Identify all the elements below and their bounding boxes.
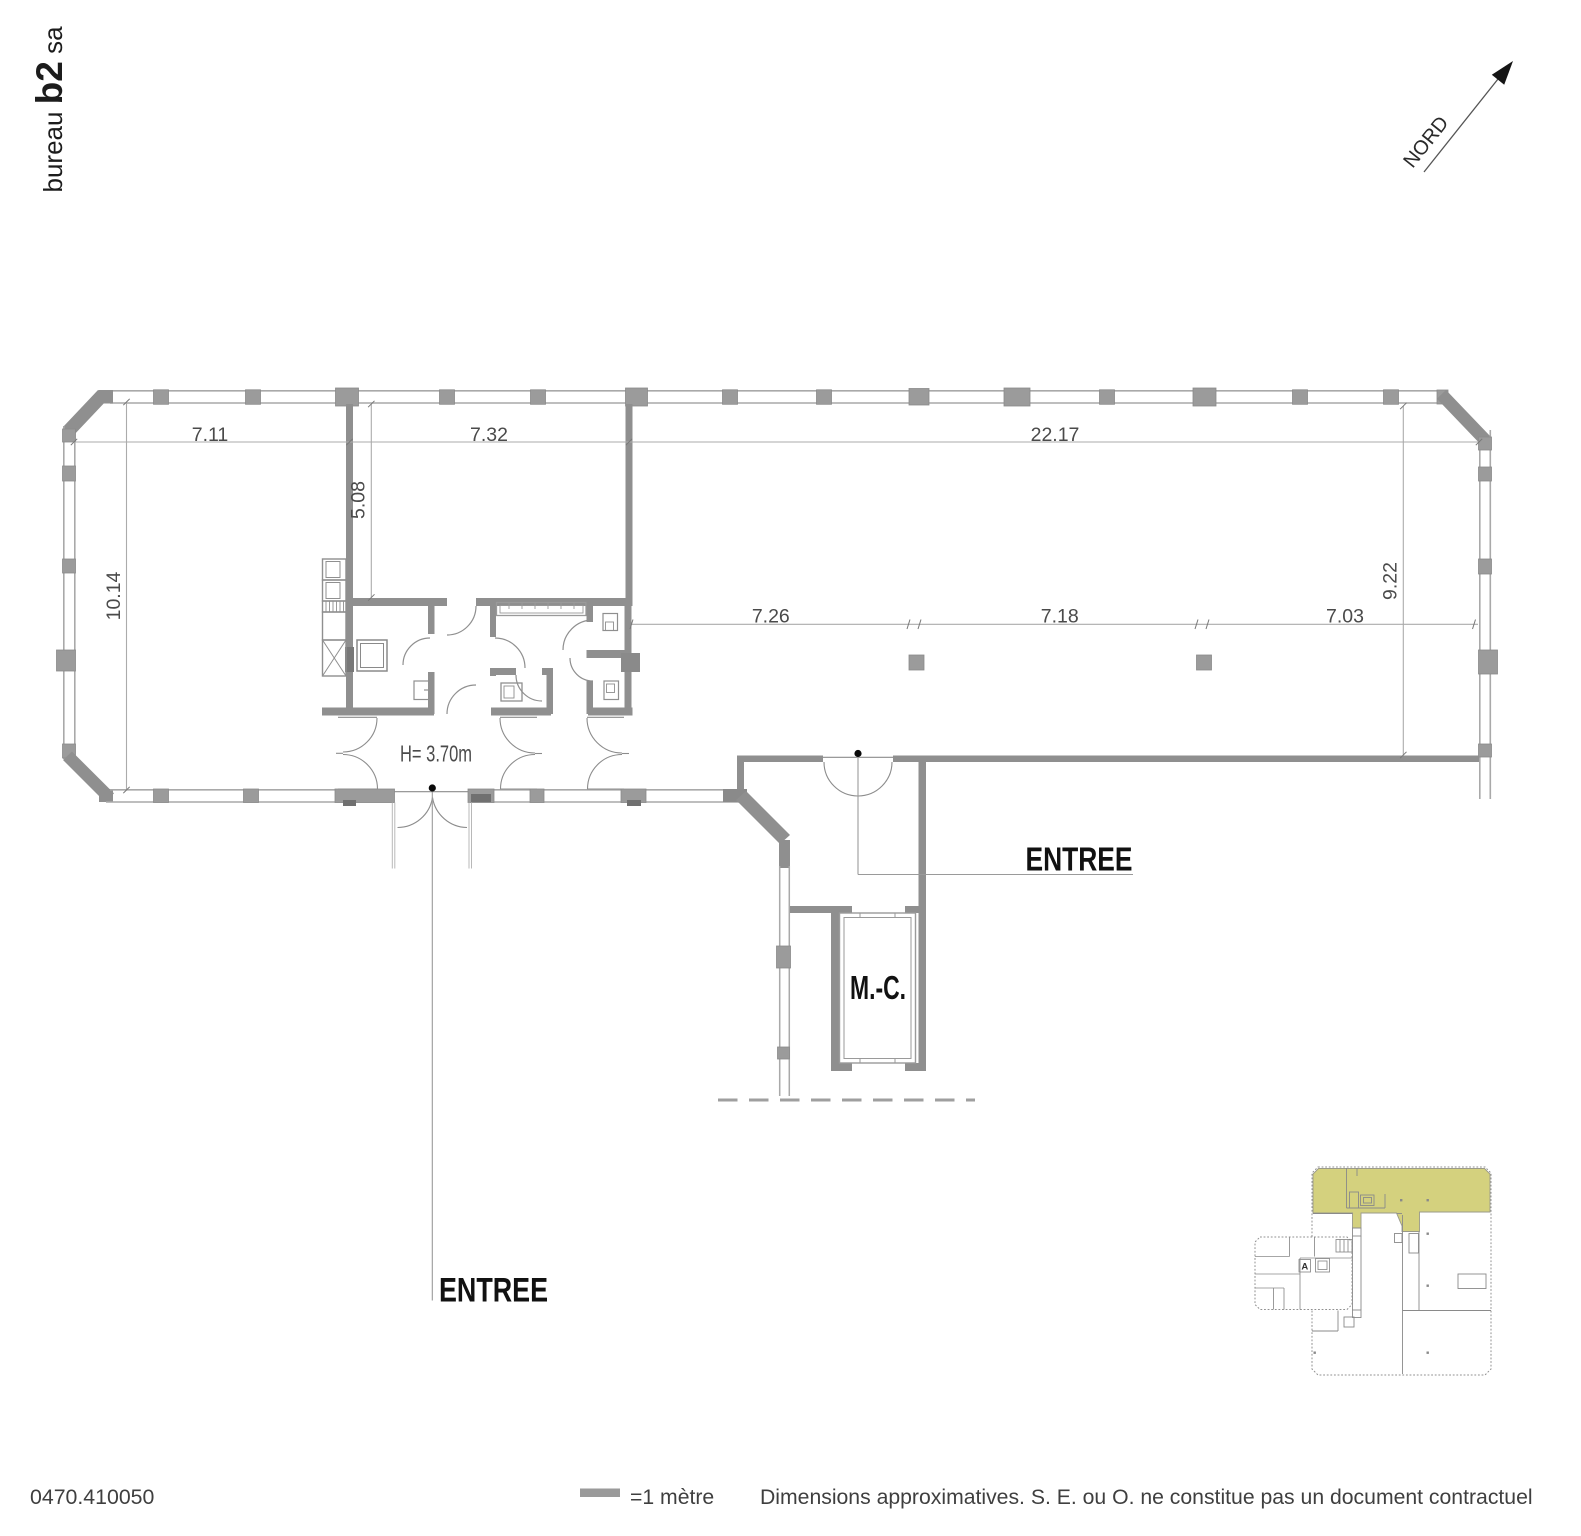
svg-text:5.08: 5.08 [348, 481, 370, 519]
svg-text:A: A [1301, 1262, 1308, 1273]
svg-text:0470.410050: 0470.410050 [30, 1485, 155, 1509]
svg-text:ENTREE: ENTREE [1026, 841, 1133, 878]
svg-text:22.17: 22.17 [1031, 424, 1080, 446]
svg-text:H= 3.70m: H= 3.70m [400, 741, 472, 767]
svg-text:7.26: 7.26 [752, 606, 790, 628]
svg-text:10.14: 10.14 [103, 571, 125, 620]
svg-text:=1 mètre: =1 mètre [630, 1486, 714, 1509]
svg-text:7.03: 7.03 [1326, 606, 1364, 628]
svg-text:Dimensions approximatives. S.: Dimensions approximatives. S. E. ou O. n… [760, 1486, 1533, 1509]
svg-text:7.18: 7.18 [1041, 606, 1079, 628]
svg-text:bureau b2 sa: bureau b2 sa [29, 26, 70, 193]
svg-text:7.11: 7.11 [192, 424, 229, 446]
svg-text:ENTREE: ENTREE [439, 1272, 548, 1310]
svg-text:7.32: 7.32 [470, 424, 508, 446]
svg-text:M.-C.: M.-C. [850, 969, 906, 1006]
svg-text:NORD: NORD [1399, 112, 1453, 172]
svg-text:9.22: 9.22 [1380, 562, 1402, 600]
